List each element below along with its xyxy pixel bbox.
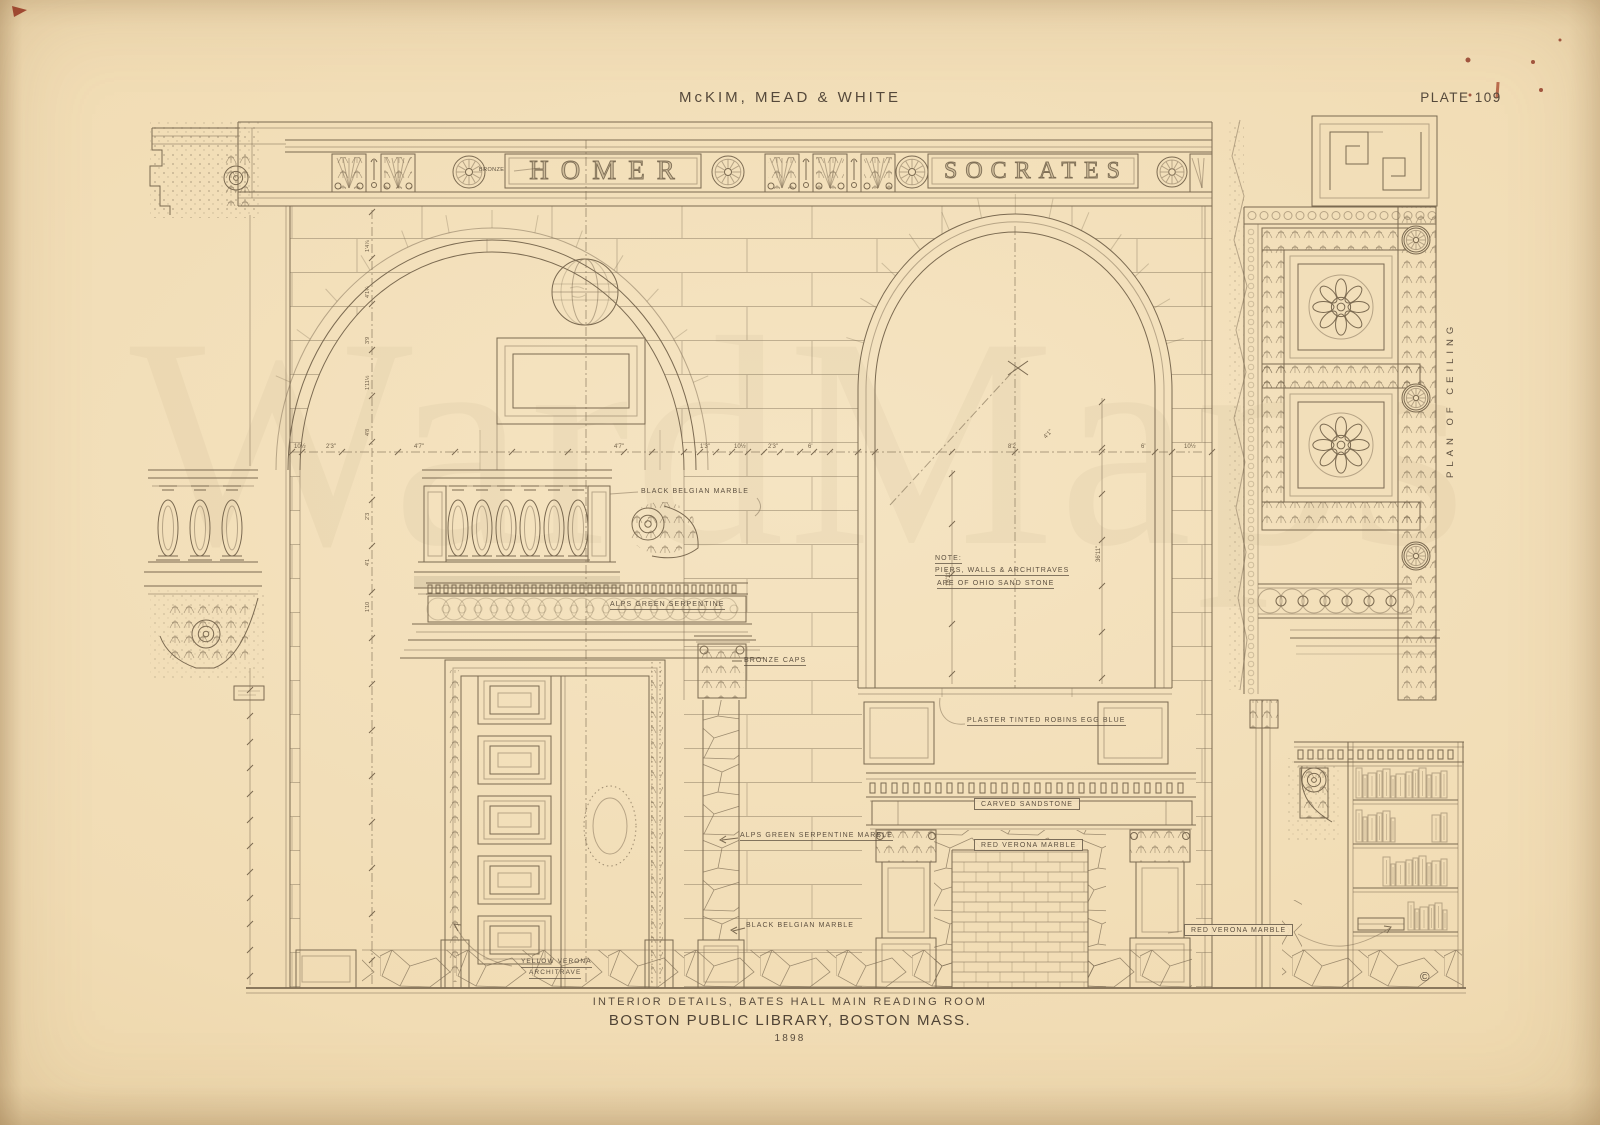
leader-lines (454, 492, 1391, 966)
wall-masonry (286, 122, 1212, 988)
ceiling-plan (1228, 116, 1440, 700)
door-balcony (414, 470, 698, 594)
door (441, 636, 752, 988)
bookcase-section (1250, 700, 1464, 988)
paper-marks (12, 6, 1562, 98)
entablature (238, 122, 1212, 206)
left-profile-section (144, 120, 286, 985)
right-niche (846, 194, 1183, 764)
plate-paper: WardMaps McKIM, MEAD & WHITE PLATE 109 H… (0, 0, 1600, 1125)
architectural-drawing (0, 0, 1600, 1125)
